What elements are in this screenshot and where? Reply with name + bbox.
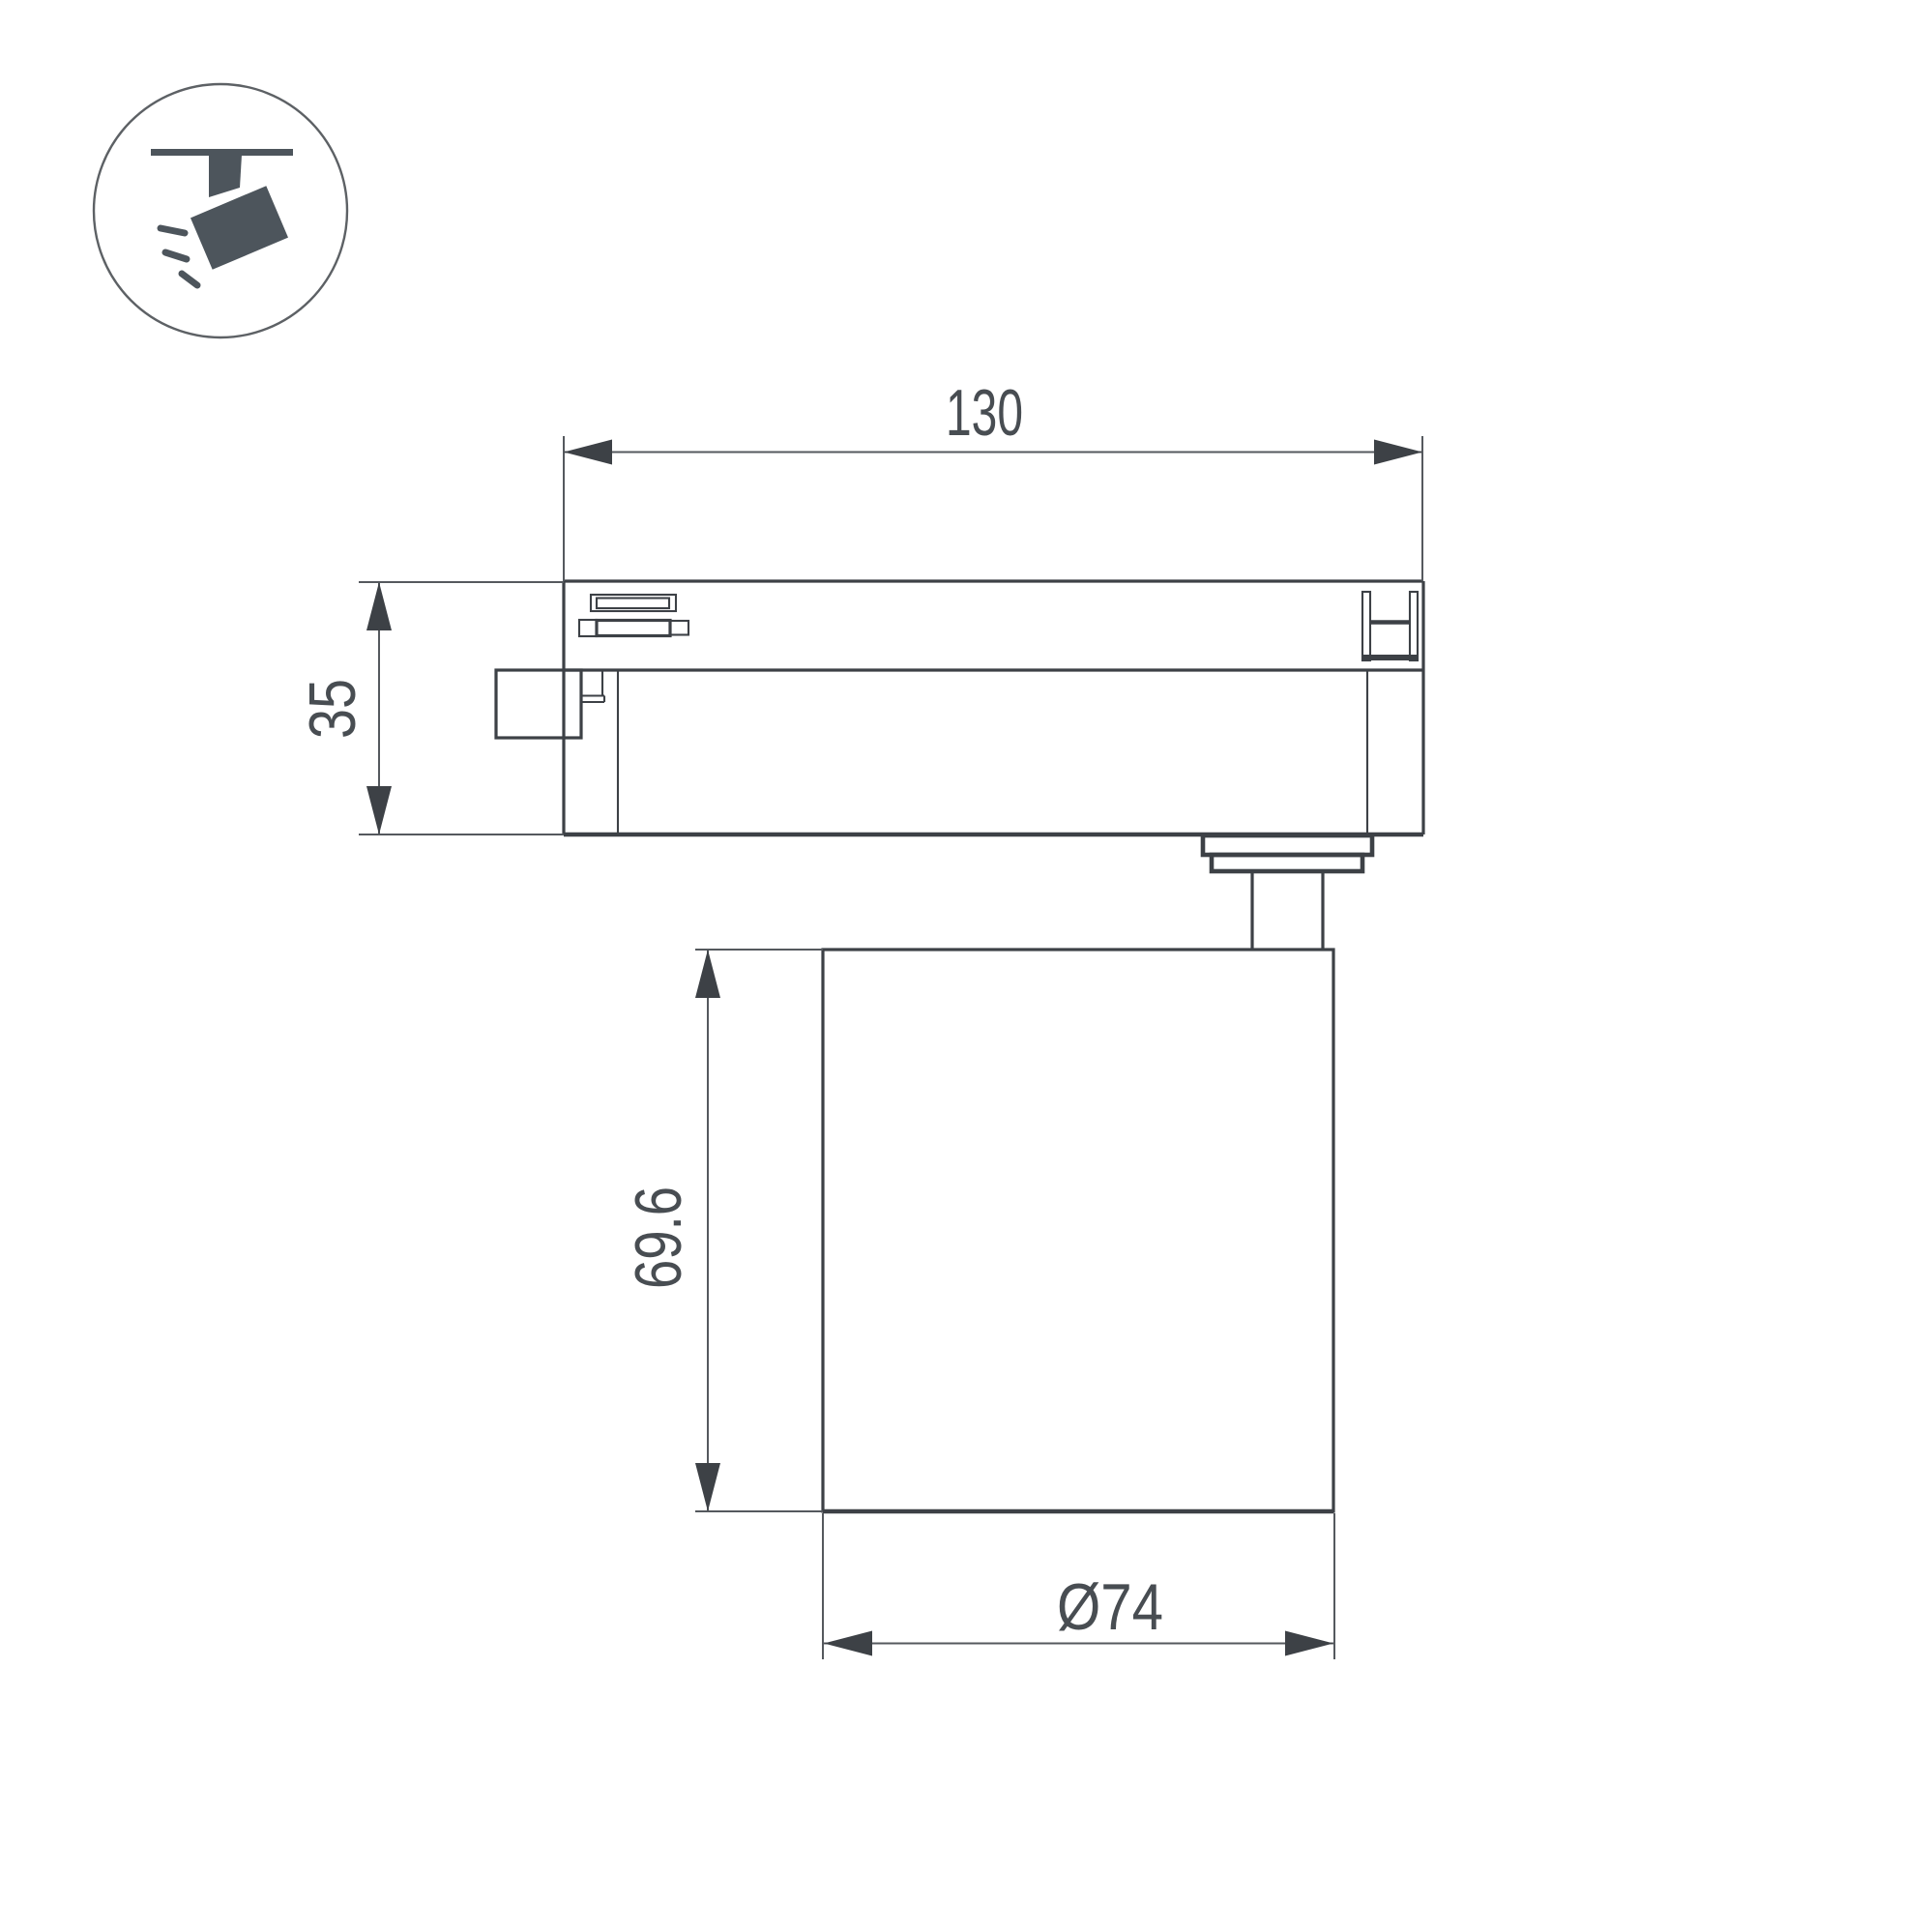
icon-light-ray — [161, 228, 185, 233]
arrow-down-icon — [366, 786, 392, 834]
lock-bracket-base — [1362, 655, 1418, 660]
arrow-down-icon — [695, 1463, 720, 1511]
arrow-up-icon — [366, 582, 392, 630]
icon-lamp-head — [190, 186, 288, 270]
adapter-knob-step — [580, 671, 604, 702]
dimension-label-adapter-height: 35 — [296, 679, 369, 739]
product-type-icon — [94, 84, 347, 337]
dimension-track-width: 130 — [564, 376, 1422, 581]
drawing-canvas: 130 35 69.6 Ø74 — [0, 0, 1932, 1932]
icon-light-ray — [165, 252, 187, 259]
lamp-head-body — [823, 950, 1333, 1511]
dimension-label-head-diameter: Ø74 — [1057, 1570, 1163, 1644]
adapter-side-knob — [496, 670, 581, 738]
dimension-label-track-width: 130 — [946, 376, 1023, 450]
arrow-up-icon — [695, 950, 720, 998]
contact-clip-inner — [597, 599, 669, 609]
dimension-head-diameter: Ø74 — [823, 1513, 1334, 1659]
mount-flange-lower — [1212, 855, 1362, 871]
dimension-label-head-height: 69.6 — [622, 1186, 695, 1289]
icon-mount-stem — [209, 155, 242, 197]
arrow-right-icon — [1285, 1631, 1333, 1656]
phase-clip-right-cap — [670, 621, 688, 635]
phase-clip-left-cap — [579, 620, 597, 636]
arrow-left-icon — [824, 1631, 872, 1656]
phase-clip-body — [597, 621, 670, 636]
arrow-right-icon — [1374, 440, 1422, 465]
lock-bracket-right-bar — [1410, 592, 1418, 660]
lock-bracket-left-bar — [1362, 592, 1370, 660]
icon-light-ray — [182, 274, 197, 285]
lamp-head-assembly — [823, 835, 1372, 1511]
dimension-drawing: 130 35 69.6 Ø74 — [0, 0, 1932, 1932]
track-adapter — [496, 581, 1423, 834]
icon-track-bar — [151, 149, 293, 156]
dimension-adapter-height: 35 — [296, 582, 564, 834]
dimension-head-height: 69.6 — [622, 950, 823, 1511]
arrow-left-icon — [564, 440, 612, 465]
mount-flange-upper — [1203, 835, 1372, 855]
